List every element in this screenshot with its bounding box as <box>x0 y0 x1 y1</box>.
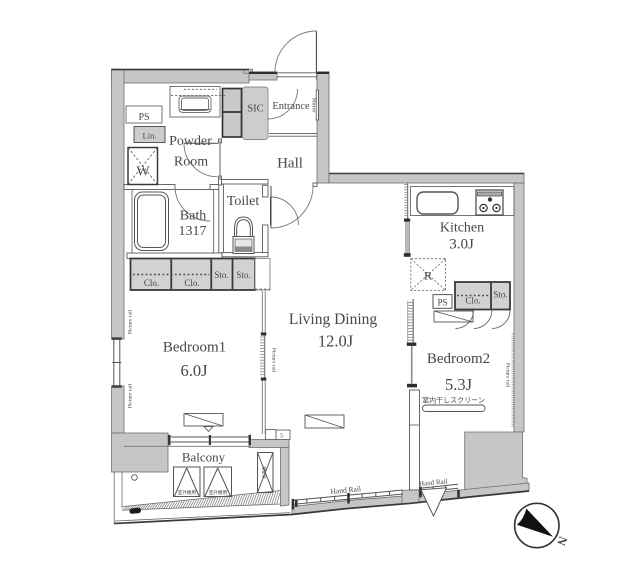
svg-text:Mirror: Mirror <box>311 98 317 113</box>
svg-text:Kitchen: Kitchen <box>440 221 484 236</box>
svg-text:Powder: Powder <box>169 134 212 149</box>
svg-text:SIC: SIC <box>247 104 263 115</box>
svg-text:Lin.: Lin. <box>143 131 157 141</box>
svg-text:Bedroom2: Bedroom2 <box>427 351 490 367</box>
svg-text:6.0J: 6.0J <box>180 361 208 380</box>
svg-text:給湯器: 給湯器 <box>261 467 267 479</box>
svg-text:Bedroom1: Bedroom1 <box>163 340 226 356</box>
svg-text:Picture rail: Picture rail <box>271 348 277 373</box>
svg-text:Balcony: Balcony <box>182 450 226 465</box>
svg-text:5.3J: 5.3J <box>445 375 473 394</box>
svg-text:Clo.: Clo. <box>465 296 480 306</box>
svg-text:Sto.: Sto. <box>236 270 250 280</box>
svg-text:PS: PS <box>138 112 149 123</box>
svg-text:Room: Room <box>174 155 208 170</box>
svg-text:Hall: Hall <box>277 156 303 172</box>
svg-text:W: W <box>136 165 150 180</box>
svg-text:室外機用: 室外機用 <box>178 489 197 496</box>
svg-text:Clo.: Clo. <box>144 278 159 288</box>
svg-text:Picture rail: Picture rail <box>505 363 511 388</box>
svg-text:Picture rail: Picture rail <box>128 309 134 334</box>
svg-text:Sto.: Sto. <box>214 270 228 280</box>
svg-text:12.0J: 12.0J <box>318 332 354 351</box>
svg-text:Toilet: Toilet <box>227 194 260 209</box>
svg-text:Entrance: Entrance <box>272 101 310 112</box>
svg-text:Sto.: Sto. <box>493 290 507 300</box>
svg-text:Bath: Bath <box>180 209 206 224</box>
svg-text:室外機用: 室外機用 <box>209 489 228 496</box>
svg-text:室内干しスクリーン: 室内干しスクリーン <box>422 396 485 405</box>
svg-text:Picture rail: Picture rail <box>128 383 134 408</box>
svg-text:Living Dining: Living Dining <box>289 311 378 328</box>
svg-text:5: 5 <box>280 434 283 440</box>
svg-text:PS: PS <box>437 298 447 308</box>
svg-text:3.0J: 3.0J <box>449 237 474 253</box>
svg-text:1317: 1317 <box>179 224 207 239</box>
svg-text:Clo.: Clo. <box>184 278 199 288</box>
svg-text:R: R <box>424 269 432 283</box>
